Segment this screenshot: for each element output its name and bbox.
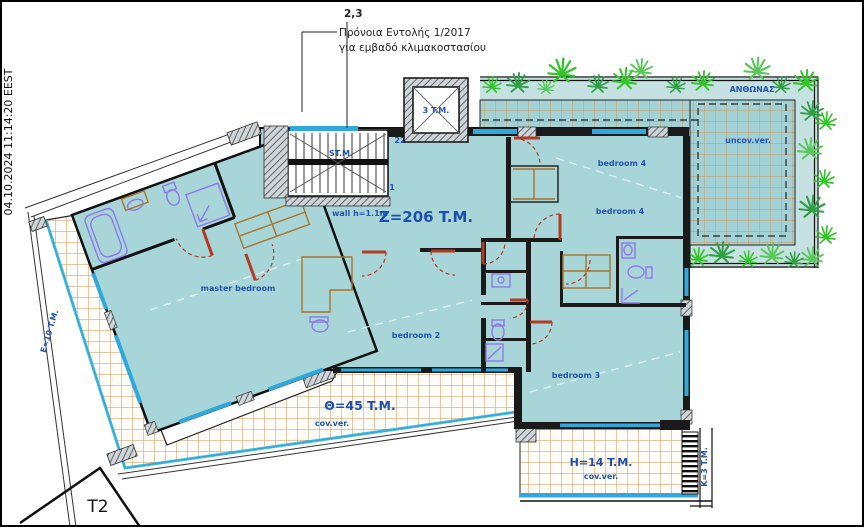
date-stamp: 04.10.2024 11:14:20 EEST — [2, 68, 15, 215]
sheet-mark-label: T2 — [86, 497, 108, 517]
elevator: 3 T.M. — [404, 78, 468, 142]
label-h-area: H=14 T.M. — [570, 456, 633, 469]
floor-plan-sheet: ΑΝΘΩΝΑΣ uncov.ver. — [0, 0, 864, 527]
label-bedroom-2: bedroom 2 — [392, 331, 441, 340]
label-stair-core: ST.M. — [329, 149, 353, 158]
annotation-line2: για εμβαδό κλιμακοστασίου — [339, 42, 486, 54]
label-theta-area: Θ=45 T.M. — [324, 398, 395, 413]
label-master-bedroom: master bedroom — [201, 284, 276, 293]
label-theta-tag: cov.ver. — [315, 419, 349, 428]
label-k-area: K=3 T.M. — [700, 447, 709, 487]
label-bedroom-4b: bedroom 4 — [596, 207, 645, 216]
label-bedroom-3: bedroom 3 — [552, 371, 601, 380]
label-h-tag: cov.ver. — [584, 472, 618, 481]
annotation-line1: Πρόνοια Εντολής 1/2017 — [339, 27, 471, 39]
label-uncovered-veranda: uncov.ver. — [725, 136, 771, 145]
ladder — [682, 432, 698, 494]
label-step-1: 1 — [389, 183, 395, 192]
annotation-ref: 2,3 — [344, 8, 363, 20]
label-flower-bed: ΑΝΘΩΝΑΣ — [730, 85, 775, 94]
label-bedroom-4a: bedroom 4 — [598, 159, 647, 168]
label-main-area: Z=206 T.M. — [379, 208, 473, 226]
label-elevator-area: 3 T.M. — [423, 106, 450, 115]
floor-plan-canvas: ΑΝΘΩΝΑΣ uncov.ver. — [0, 0, 864, 527]
sheet-mark: T2 — [20, 468, 140, 527]
